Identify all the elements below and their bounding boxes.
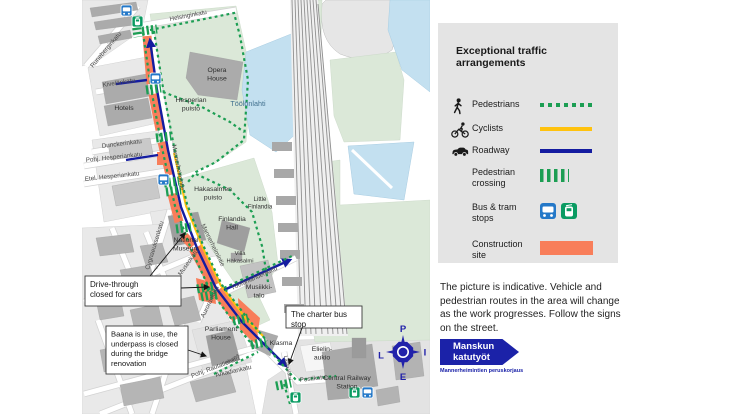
bus-stop-icon xyxy=(150,73,161,84)
sign-subtitle: Mannerheimintien peruskorjaus xyxy=(440,368,523,374)
compass-south-label: E xyxy=(400,372,406,383)
crossing-swatch xyxy=(540,169,569,182)
legend-label-crossing: Pedestrian crossing xyxy=(472,167,536,189)
bus-stop-icon xyxy=(121,5,132,16)
pedestrian-route-swatch xyxy=(540,103,592,107)
legend-label-stops: Bus & tram stops xyxy=(472,202,536,224)
city-map: HelsinginkatuRuneberginkatuKivelänkatuDu… xyxy=(0,0,735,414)
area-label-national-museum: NationalMuseum xyxy=(173,237,199,252)
bus-stop-icon xyxy=(158,174,169,185)
svg-text:Drive-throughclosed for cars: Drive-throughclosed for cars xyxy=(90,280,142,299)
bus-stop-icon xyxy=(362,387,373,398)
traffic-arrangement-infographic: HelsinginkatuRuneberginkatuKivelänkatuDu… xyxy=(0,0,735,414)
tram-stop-icon xyxy=(290,392,301,403)
area-label-kiasma: Kiasma xyxy=(270,340,293,347)
legend-label-cyclists: Cyclists xyxy=(472,123,536,134)
legend-label-roadway: Roadway xyxy=(472,145,536,156)
compass-west-label: L xyxy=(378,351,384,362)
pedestrian-icon xyxy=(451,98,471,116)
area-label-hotels: Hotels xyxy=(114,105,134,112)
stops-swatch xyxy=(540,203,580,219)
legend-panel: Exceptional traffic arrangements Pedestr… xyxy=(438,23,618,263)
disclaimer-note: The picture is indicative. Vehicle and p… xyxy=(440,281,630,335)
area-label-elielin-aukio: Elielin-aukio xyxy=(312,346,332,361)
cyclist-route-swatch xyxy=(540,127,592,131)
legend-title: Exceptional traffic arrangements xyxy=(456,45,616,69)
construction-swatch xyxy=(540,241,593,255)
cyclist-icon xyxy=(451,122,471,140)
car-icon xyxy=(451,144,471,162)
area-label-t-l-nlahti: Töölönlahti xyxy=(230,99,266,108)
tram-stop-icon xyxy=(132,16,143,27)
compass-north-label: P xyxy=(400,324,407,335)
area-label-opera-house: OperaHouse xyxy=(207,67,227,82)
legend-label-pedestrians: Pedestrians xyxy=(472,99,536,110)
roadway-swatch xyxy=(540,149,592,153)
compass-east-label: I xyxy=(424,348,427,359)
roadworks-sign: Manskun katutyöt xyxy=(440,339,519,365)
legend-label-construction: Construction site xyxy=(472,239,536,261)
